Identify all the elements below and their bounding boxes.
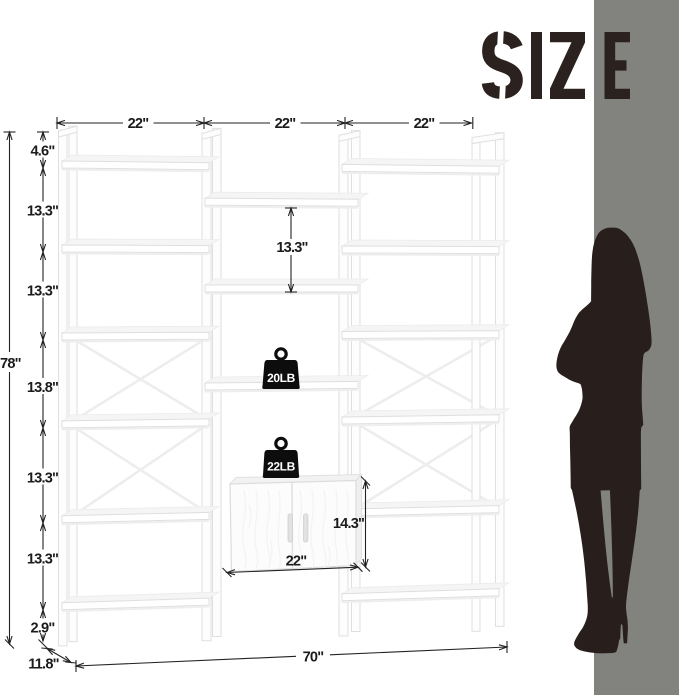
svg-text:13.3": 13.3" bbox=[276, 240, 307, 256]
svg-text:13.3": 13.3" bbox=[27, 552, 58, 568]
svg-text:70": 70" bbox=[303, 650, 324, 666]
svg-text:22": 22" bbox=[128, 116, 149, 132]
svg-text:22": 22" bbox=[286, 554, 307, 570]
svg-text:4.6": 4.6" bbox=[30, 144, 54, 160]
svg-text:22LB: 22LB bbox=[267, 459, 295, 473]
svg-text:78": 78" bbox=[0, 356, 21, 372]
svg-text:13.3": 13.3" bbox=[27, 204, 58, 220]
svg-text:13.3": 13.3" bbox=[27, 471, 58, 487]
svg-text:13.8": 13.8" bbox=[27, 380, 58, 396]
svg-text:20LB: 20LB bbox=[267, 371, 295, 385]
svg-text:22": 22" bbox=[414, 116, 435, 132]
svg-text:22": 22" bbox=[275, 116, 296, 132]
svg-text:11.8": 11.8" bbox=[28, 657, 59, 673]
svg-text:14.3": 14.3" bbox=[333, 516, 364, 532]
svg-text:2.9": 2.9" bbox=[30, 621, 54, 637]
svg-text:13.3": 13.3" bbox=[27, 284, 58, 300]
